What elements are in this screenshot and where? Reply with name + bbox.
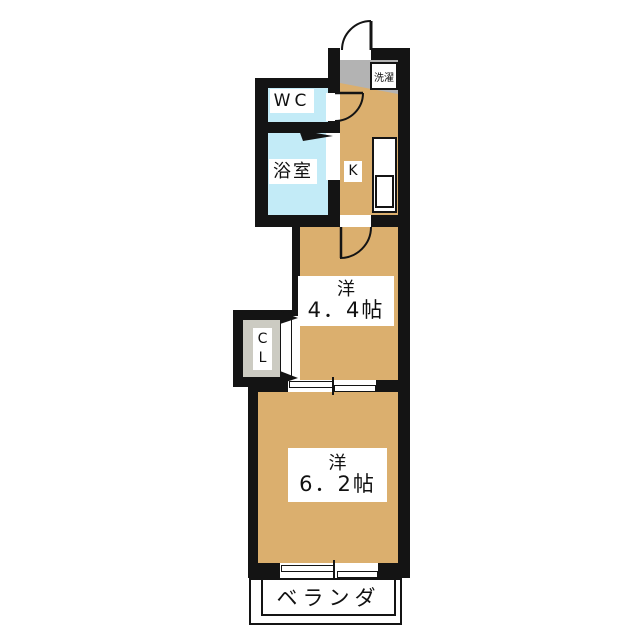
entrance-door-arc: [342, 21, 371, 50]
closet-label-line2: L: [259, 349, 267, 368]
entrance-opening: [340, 48, 371, 60]
wall-wc-left: [255, 88, 268, 215]
kitchen-sink: [375, 175, 394, 208]
wall-room2-left: [248, 392, 258, 563]
closet-label: C L: [253, 328, 272, 370]
veranda-label: ベランダ: [261, 578, 396, 616]
wall-wc-bath-divider: [268, 122, 333, 133]
room1-label: 洋 4．4帖: [298, 276, 394, 326]
room1-type: 洋: [308, 280, 385, 300]
room2-size: 6．2帖: [299, 473, 376, 496]
sliding-door-panel: [289, 381, 333, 388]
laundry-label: 洗濯: [370, 62, 398, 90]
closet-door-panel: [280, 318, 292, 378]
room2-label: 洋 6．2帖: [288, 448, 387, 502]
window-panel: [281, 565, 335, 572]
wall-right: [398, 48, 410, 578]
veranda: ベランダ: [249, 578, 402, 625]
closet-label-line1: C: [258, 330, 268, 349]
window-panel: [337, 571, 378, 578]
bathroom-label: 浴室: [269, 159, 317, 184]
room2-type: 洋: [299, 454, 376, 474]
wc-label: WC: [270, 89, 314, 113]
wc-door-opening: [326, 93, 340, 121]
wall-wc-top: [255, 78, 340, 88]
wall-kitchen-bottom: [255, 215, 410, 227]
kitchen-label: K: [344, 161, 362, 182]
floorplan: 洗濯 WC 浴室 K 洋 4．4帖 C L 洋 6．2帖 ベランダ: [0, 0, 640, 640]
room1-door-opening: [340, 215, 371, 227]
room1-size: 4．4帖: [308, 299, 385, 322]
sliding-door-panel: [334, 385, 376, 392]
bath-door-opening: [326, 133, 340, 180]
